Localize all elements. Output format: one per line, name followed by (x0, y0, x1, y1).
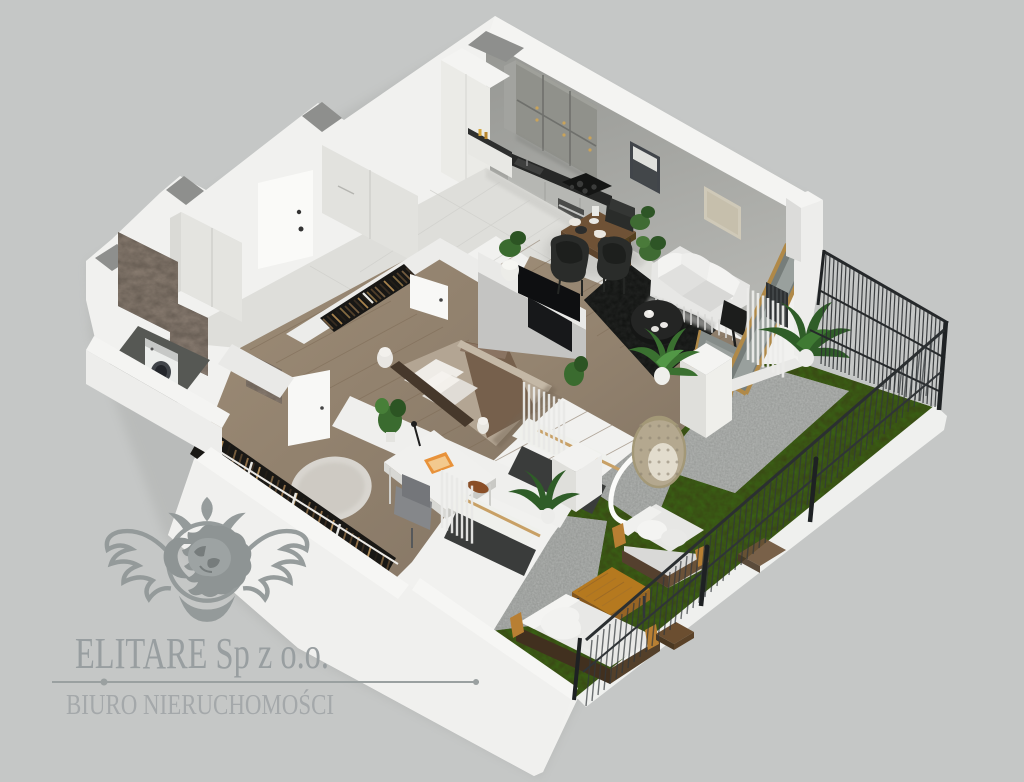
svg-text:ELITARE Sp z o.o.: ELITARE Sp z o.o. (75, 629, 329, 678)
svg-text:BIURO NIERUCHOMOŚCI: BIURO NIERUCHOMOŚCI (66, 690, 334, 721)
